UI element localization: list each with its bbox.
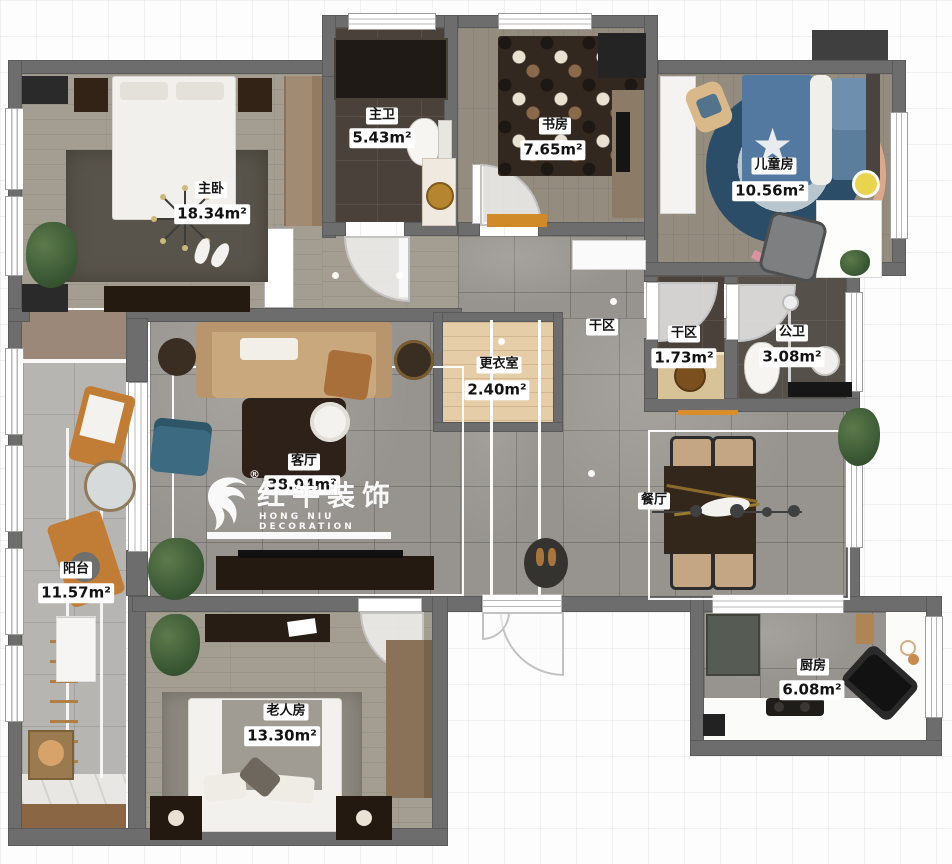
- wall-study-kids-divider: [644, 15, 658, 263]
- balcony-mat: [22, 310, 126, 362]
- balcony-slider-track: [22, 359, 126, 363]
- wall-elder-top: [132, 596, 482, 612]
- label-balcony-area: 11.57m²: [38, 583, 114, 603]
- wall-balcony-divider-a: [126, 318, 148, 382]
- wall-kids-top: [658, 60, 906, 74]
- label-master-bath-name: 主卫: [366, 108, 398, 125]
- study-monitor: [616, 112, 630, 172]
- kitchen-window-right: [925, 616, 943, 718]
- elder-wardrobe: [386, 640, 432, 798]
- label-dry-hall-name: 干区: [586, 319, 618, 336]
- label-dressing-area: 2.40m²: [464, 380, 529, 400]
- wall-dressing-right: [553, 312, 563, 432]
- pubbath-shower-head: [782, 294, 799, 311]
- master-wardrobe: [284, 76, 322, 226]
- wall-dry-pub-divider-a: [724, 276, 738, 284]
- balcony-pouf: [38, 740, 64, 766]
- entry-mat: [524, 538, 568, 588]
- downlight: [396, 272, 403, 279]
- kitchen-top-cabinet: [856, 614, 874, 644]
- mbath-window-top: [348, 13, 436, 30]
- dining-chair-bottom-right: [712, 548, 756, 590]
- wall-kitchen-bottom: [690, 740, 942, 756]
- master-nightstand-left: [74, 78, 108, 112]
- balcony-round-table: [84, 460, 136, 512]
- label-dry-area-area: 1.73m²: [651, 348, 716, 368]
- dining-chandelier-bulb-3: [762, 507, 772, 517]
- wall-study-bottom-2: [538, 222, 658, 236]
- wall-master-top: [8, 60, 338, 74]
- kitchen-counter-item: [703, 714, 725, 736]
- label-study-area: 7.65m²: [520, 140, 585, 160]
- master-suite-sliding-door: [264, 228, 294, 308]
- label-kids-room-name: 儿童房: [751, 158, 796, 175]
- elder-door-leaf: [358, 598, 422, 612]
- label-master-bedroom-area: 18.34m²: [174, 204, 250, 224]
- mbath-sink: [426, 182, 454, 210]
- wall-mbath-bottom: [322, 222, 346, 236]
- wall-balcony-divider-b: [126, 550, 148, 596]
- label-master-bath-area: 5.43m²: [349, 128, 414, 148]
- hall-cabinet: [572, 240, 646, 270]
- balcony-window-2: [5, 445, 24, 532]
- brand-underline: [207, 532, 391, 539]
- dining-chandelier-bulb-2: [730, 504, 744, 518]
- label-public-bath-area: 3.08m²: [759, 347, 824, 367]
- living-coffee-tray: [310, 402, 350, 442]
- label-kids-room-area: 10.56m²: [732, 181, 808, 201]
- master-bed-pillow-left: [120, 82, 168, 100]
- balcony-window-4: [5, 645, 24, 722]
- pubbath-black-counter: [788, 382, 852, 397]
- label-elder-area: 13.30m²: [244, 726, 320, 746]
- kids-ac-unit: [812, 30, 888, 60]
- entry-slipper-1: [536, 548, 544, 566]
- wall-elder-left: [128, 596, 146, 846]
- label-study-name: 书房: [539, 118, 571, 135]
- pubbath-window-right: [845, 292, 863, 392]
- kids-window-right: [890, 112, 908, 239]
- label-public-bath-name: 公卫: [776, 325, 808, 342]
- kitchen-deco-bowl-2: [908, 654, 919, 665]
- label-balcony-name: 阳台: [60, 562, 92, 579]
- master-bed-pillow-right: [176, 82, 224, 100]
- living-sofa-blanket: [240, 338, 298, 360]
- threshold-accent: [678, 410, 738, 415]
- downlight: [498, 338, 505, 345]
- study-bench: [487, 214, 547, 227]
- balcony-window-3: [5, 548, 24, 635]
- downlight: [332, 272, 339, 279]
- living-tv-cabinet: [216, 556, 434, 590]
- label-dressing-name: 更衣室: [476, 357, 521, 374]
- elder-nightstand-left-knob: [168, 810, 184, 826]
- floor-plan: ★: [0, 0, 952, 864]
- master-cabinet-top-left: [22, 76, 68, 104]
- label-kitchen-name: 厨房: [797, 659, 829, 676]
- balcony-wood-cabinet: [22, 804, 126, 830]
- label-dining-name: 餐厅: [638, 493, 670, 510]
- label-dry-area-name: 干区: [668, 326, 700, 343]
- master-nightstand-right: [238, 78, 272, 112]
- downlight: [588, 470, 595, 477]
- living-armchair: [149, 417, 212, 477]
- master-cabinet-bottom-left: [22, 284, 68, 312]
- downlight: [610, 298, 617, 305]
- dining-corner-plant: [838, 408, 880, 466]
- kids-bed-cushions: [832, 78, 868, 180]
- master-tv-cabinet: [104, 286, 250, 312]
- kids-wall-clock: [852, 170, 880, 198]
- dining-chair-bottom-left: [670, 548, 714, 590]
- brand-watermark: ® 红牛装饰 HONG NIU DECORATION: [205, 466, 400, 548]
- master-window-left-1: [5, 108, 24, 190]
- dining-chandelier-bulb-4: [788, 505, 800, 517]
- brand-name-cn: 红牛装饰: [257, 474, 397, 514]
- wall-kitchen-left: [690, 596, 704, 756]
- master-window-left-2: [5, 196, 24, 276]
- living-side-table-right: [394, 340, 434, 380]
- living-sofa-throw: [323, 349, 373, 401]
- wall-dressing-top: [433, 312, 563, 322]
- living-side-table-left: [158, 338, 196, 376]
- dining-chandelier-bulb-1: [690, 505, 702, 517]
- elder-nightstand-right-knob: [356, 810, 372, 826]
- wall-study-bottom: [458, 222, 480, 236]
- kitchen-fridge: [706, 614, 760, 676]
- entry-door-swing-main: [500, 612, 564, 676]
- bull-logo-icon: [205, 472, 253, 534]
- kids-bed-long-pillow: [810, 75, 832, 185]
- kitchen-stove-burner-2: [800, 702, 810, 712]
- study-cabinet: [598, 33, 646, 78]
- kitchen-stove-burner-1: [774, 702, 784, 712]
- label-master-bedroom-name: 主卧: [195, 182, 227, 199]
- entry-door-frame: [482, 594, 562, 614]
- living-tv: [238, 550, 403, 558]
- entry-slipper-2: [548, 548, 556, 566]
- mbath-shower: [334, 38, 448, 100]
- study-window-top: [498, 13, 592, 30]
- wall-elder-right: [432, 596, 448, 846]
- label-kitchen-area: 6.08m²: [779, 680, 844, 700]
- brand-name-en: HONG NIU DECORATION: [259, 512, 400, 532]
- label-elder-name: 老人房: [263, 704, 308, 721]
- wall-dryblock-bottom: [644, 398, 860, 412]
- balcony-shelf: [56, 616, 96, 682]
